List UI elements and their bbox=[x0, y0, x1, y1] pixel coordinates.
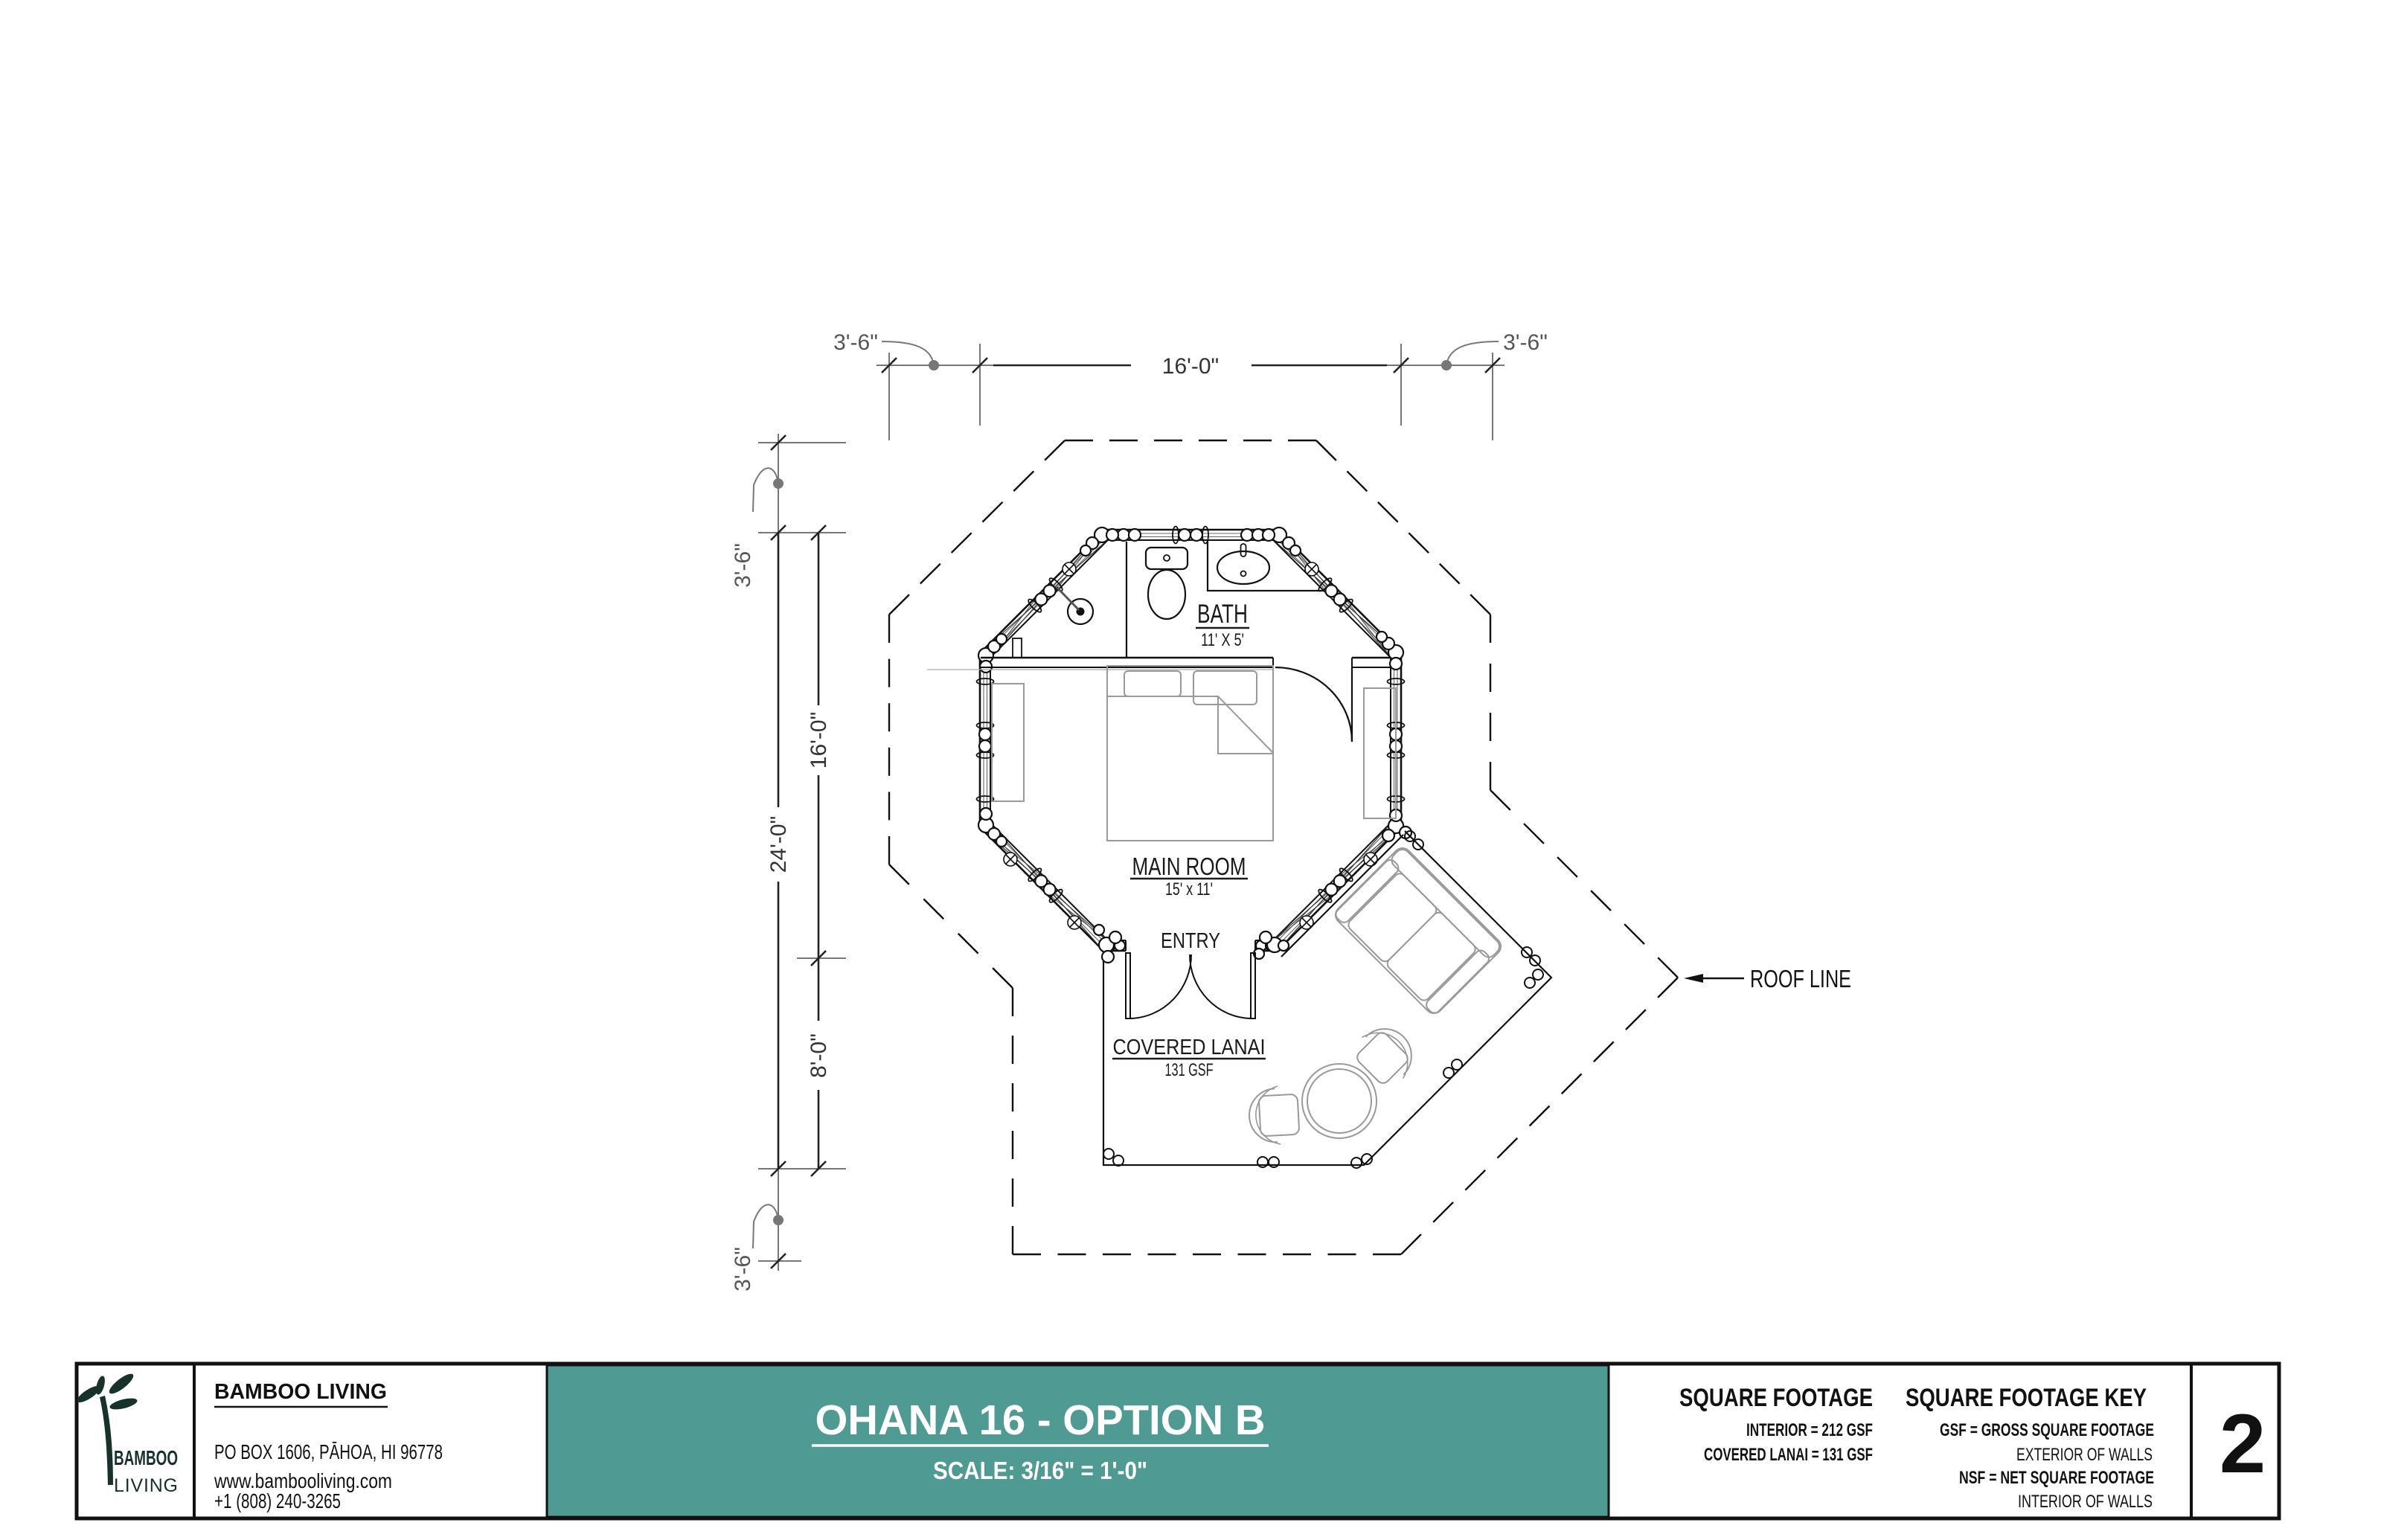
svg-text:LIVING: LIVING bbox=[114, 1475, 178, 1496]
svg-text:24'-0": 24'-0" bbox=[766, 816, 791, 873]
svg-text:BATH: BATH bbox=[1197, 600, 1248, 629]
svg-text:SCALE: 3/16" = 1'-0": SCALE: 3/16" = 1'-0" bbox=[933, 1457, 1147, 1484]
svg-text:15' x 11': 15' x 11' bbox=[1165, 879, 1213, 899]
svg-text:16'-0": 16'-0" bbox=[1162, 354, 1219, 379]
svg-text:PO BOX 1606, PĀHOA, HI 96778: PO BOX 1606, PĀHOA, HI 96778 bbox=[214, 1440, 443, 1463]
svg-text:3'-6": 3'-6" bbox=[731, 1247, 755, 1292]
svg-text:+1 (808) 240-3265: +1 (808) 240-3265 bbox=[214, 1489, 341, 1512]
svg-text:BAMBOO LIVING: BAMBOO LIVING bbox=[214, 1380, 387, 1404]
svg-text:SQUARE FOOTAGE: SQUARE FOOTAGE bbox=[1679, 1384, 1873, 1412]
svg-text:3'-6": 3'-6" bbox=[833, 330, 878, 355]
svg-text:COVERED LANAI: COVERED LANAI bbox=[1113, 1036, 1266, 1059]
svg-text:16'-0": 16'-0" bbox=[807, 712, 831, 769]
svg-text:ROOF LINE: ROOF LINE bbox=[1750, 965, 1851, 992]
svg-text:NSF = NET SQUARE FOOTAGE: NSF = NET SQUARE FOOTAGE bbox=[1959, 1468, 2154, 1488]
svg-text:COVERED LANAI = 131 GSF: COVERED LANAI = 131 GSF bbox=[1704, 1445, 1873, 1465]
svg-text:EXTERIOR OF WALLS: EXTERIOR OF WALLS bbox=[2016, 1445, 2153, 1465]
svg-text:2: 2 bbox=[2220, 1397, 2266, 1490]
svg-text:OHANA 16 - OPTION B: OHANA 16 - OPTION B bbox=[815, 1396, 1266, 1444]
svg-text:11' X 5': 11' X 5' bbox=[1201, 630, 1244, 650]
svg-text:INTERIOR = 212 GSF: INTERIOR = 212 GSF bbox=[1746, 1420, 1873, 1440]
svg-text:SQUARE FOOTAGE KEY: SQUARE FOOTAGE KEY bbox=[1906, 1384, 2147, 1412]
svg-text:INTERIOR OF WALLS: INTERIOR OF WALLS bbox=[2018, 1492, 2153, 1512]
svg-text:8'-0": 8'-0" bbox=[807, 1033, 831, 1078]
svg-text:3'-6": 3'-6" bbox=[1503, 330, 1548, 355]
svg-text:ENTRY: ENTRY bbox=[1161, 929, 1220, 953]
svg-text:BAMBOO: BAMBOO bbox=[114, 1446, 178, 1469]
svg-text:GSF = GROSS SQUARE FOOTAGE: GSF = GROSS SQUARE FOOTAGE bbox=[1940, 1420, 2154, 1440]
svg-text:MAIN ROOM: MAIN ROOM bbox=[1132, 853, 1246, 880]
svg-text:3'-6": 3'-6" bbox=[731, 543, 755, 588]
svg-text:131 GSF: 131 GSF bbox=[1165, 1060, 1214, 1080]
